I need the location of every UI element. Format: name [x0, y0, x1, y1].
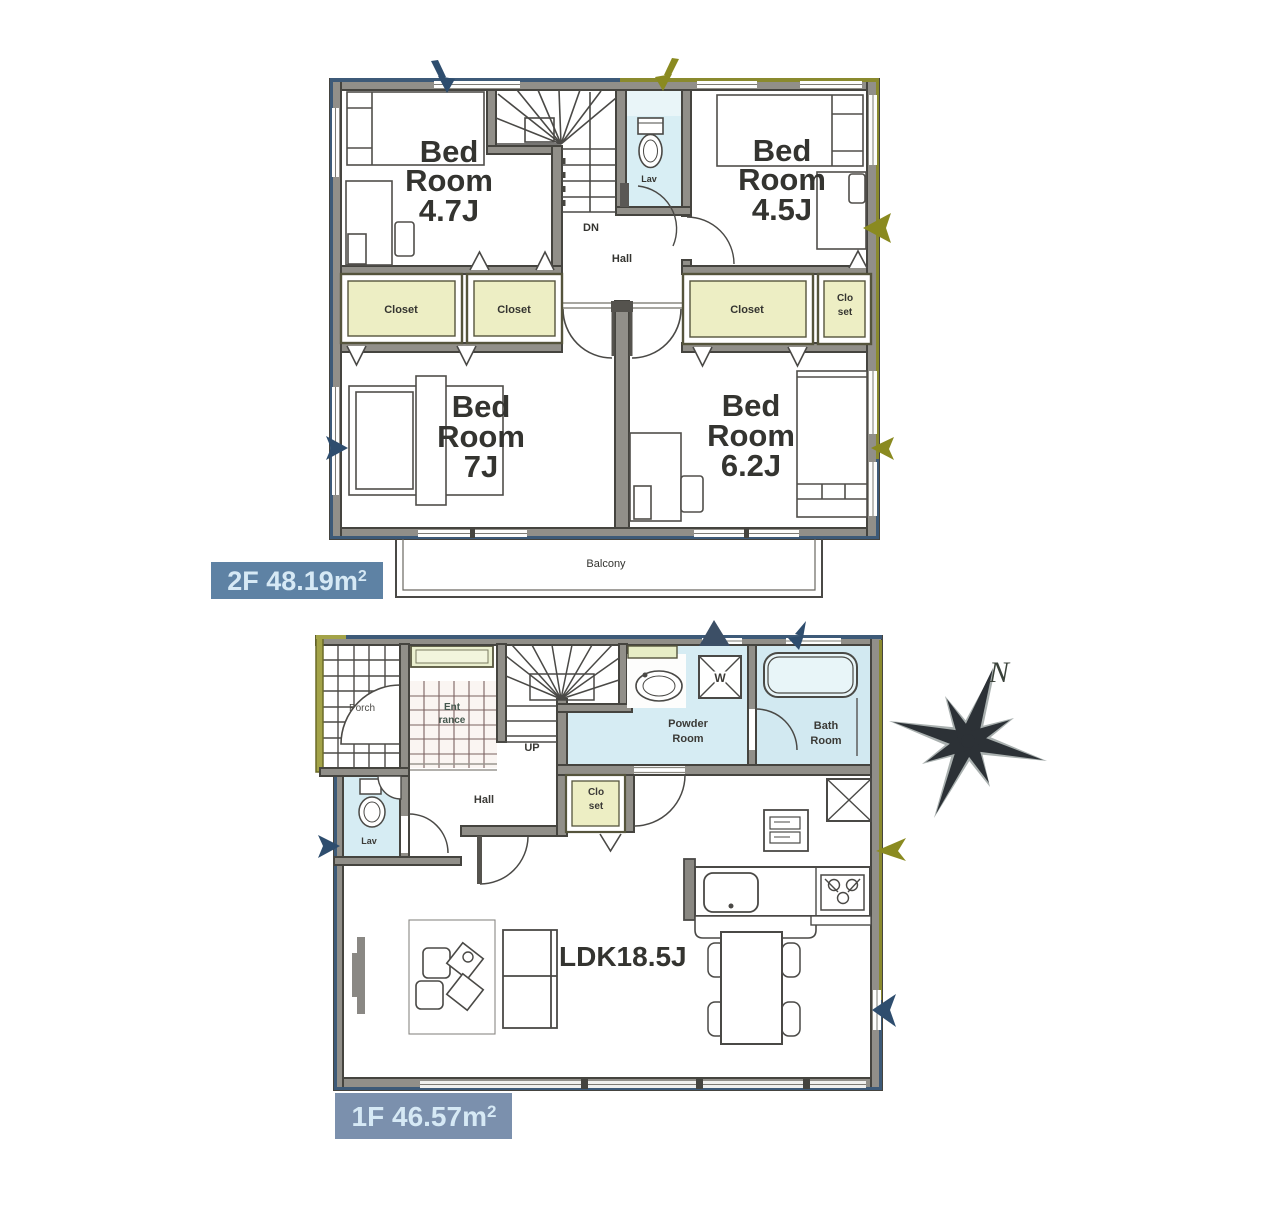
svg-text:set: set — [589, 801, 604, 812]
svg-text:DN: DN — [583, 222, 599, 234]
svg-text:4.5J: 4.5J — [752, 192, 812, 227]
svg-text:Room: Room — [672, 733, 703, 745]
svg-text:Lav: Lav — [361, 836, 377, 846]
svg-text:Ent: Ent — [444, 702, 461, 713]
svg-text:Powder: Powder — [668, 718, 708, 730]
svg-text:Hall: Hall — [474, 794, 494, 806]
svg-text:Balcony: Balcony — [586, 558, 626, 570]
svg-text:4.7J: 4.7J — [419, 193, 479, 228]
svg-text:N: N — [988, 656, 1011, 689]
svg-text:Porch: Porch — [349, 703, 375, 714]
svg-text:6.2J: 6.2J — [721, 448, 781, 483]
svg-text:Clo: Clo — [837, 293, 853, 304]
svg-text:Hall: Hall — [612, 253, 632, 265]
svg-text:Lav: Lav — [641, 174, 657, 184]
svg-text:rance: rance — [439, 715, 466, 726]
svg-text:Clo: Clo — [588, 787, 604, 798]
svg-text:7J: 7J — [464, 449, 498, 484]
svg-text:2F 48.19m2: 2F 48.19m2 — [227, 566, 367, 596]
svg-text:UP: UP — [524, 742, 539, 754]
svg-text:W: W — [714, 671, 726, 685]
svg-text:LDK18.5J: LDK18.5J — [559, 941, 687, 972]
svg-text:1F 46.57m2: 1F 46.57m2 — [352, 1101, 497, 1132]
svg-text:Bath: Bath — [814, 720, 839, 732]
svg-text:Room: Room — [810, 735, 841, 747]
svg-text:Closet: Closet — [497, 304, 531, 316]
svg-text:set: set — [838, 307, 853, 318]
svg-text:Closet: Closet — [730, 304, 764, 316]
svg-text:Closet: Closet — [384, 304, 418, 316]
